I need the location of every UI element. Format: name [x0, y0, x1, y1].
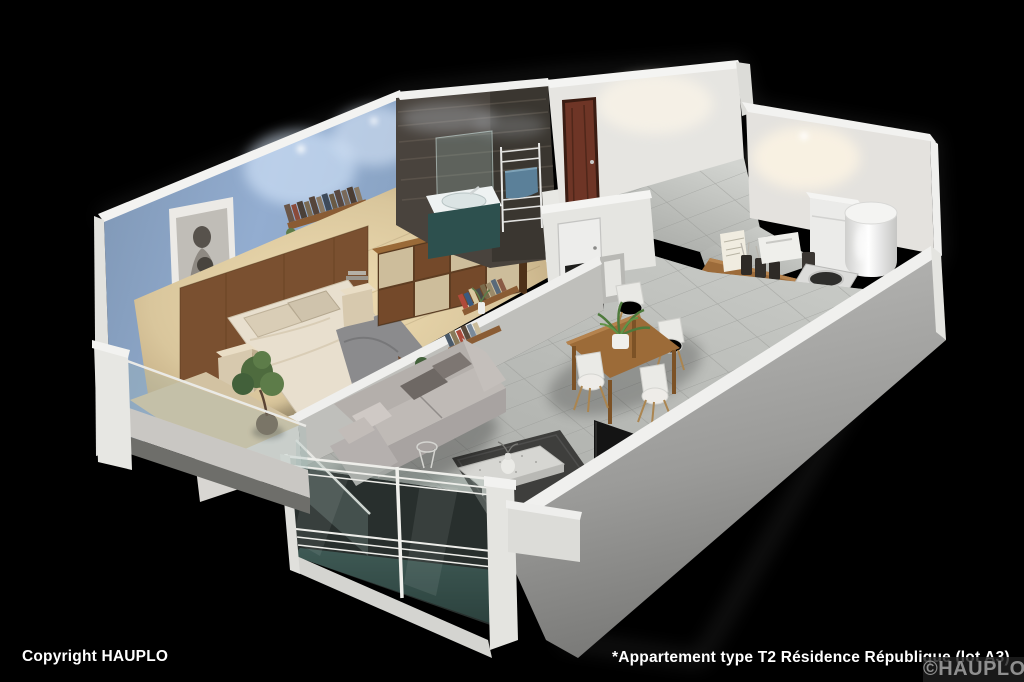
terrace-left-pillar [94, 344, 132, 470]
hauplo-watermark: ©HAUPLO [923, 657, 1024, 682]
door-handle [590, 160, 594, 164]
bathroom-vanity [426, 186, 502, 259]
water-heater-cylinder [845, 202, 897, 277]
blue-towel [505, 168, 538, 198]
entry-light-glow [597, 74, 713, 134]
apartment-3d-render: ▪▪ [0, 0, 1024, 682]
wc-door-handle [593, 246, 597, 250]
screenshot-root: ▪▪ [0, 0, 1024, 682]
bathroom [396, 78, 570, 268]
copyright-text: Copyright HAUPLO [22, 648, 168, 666]
